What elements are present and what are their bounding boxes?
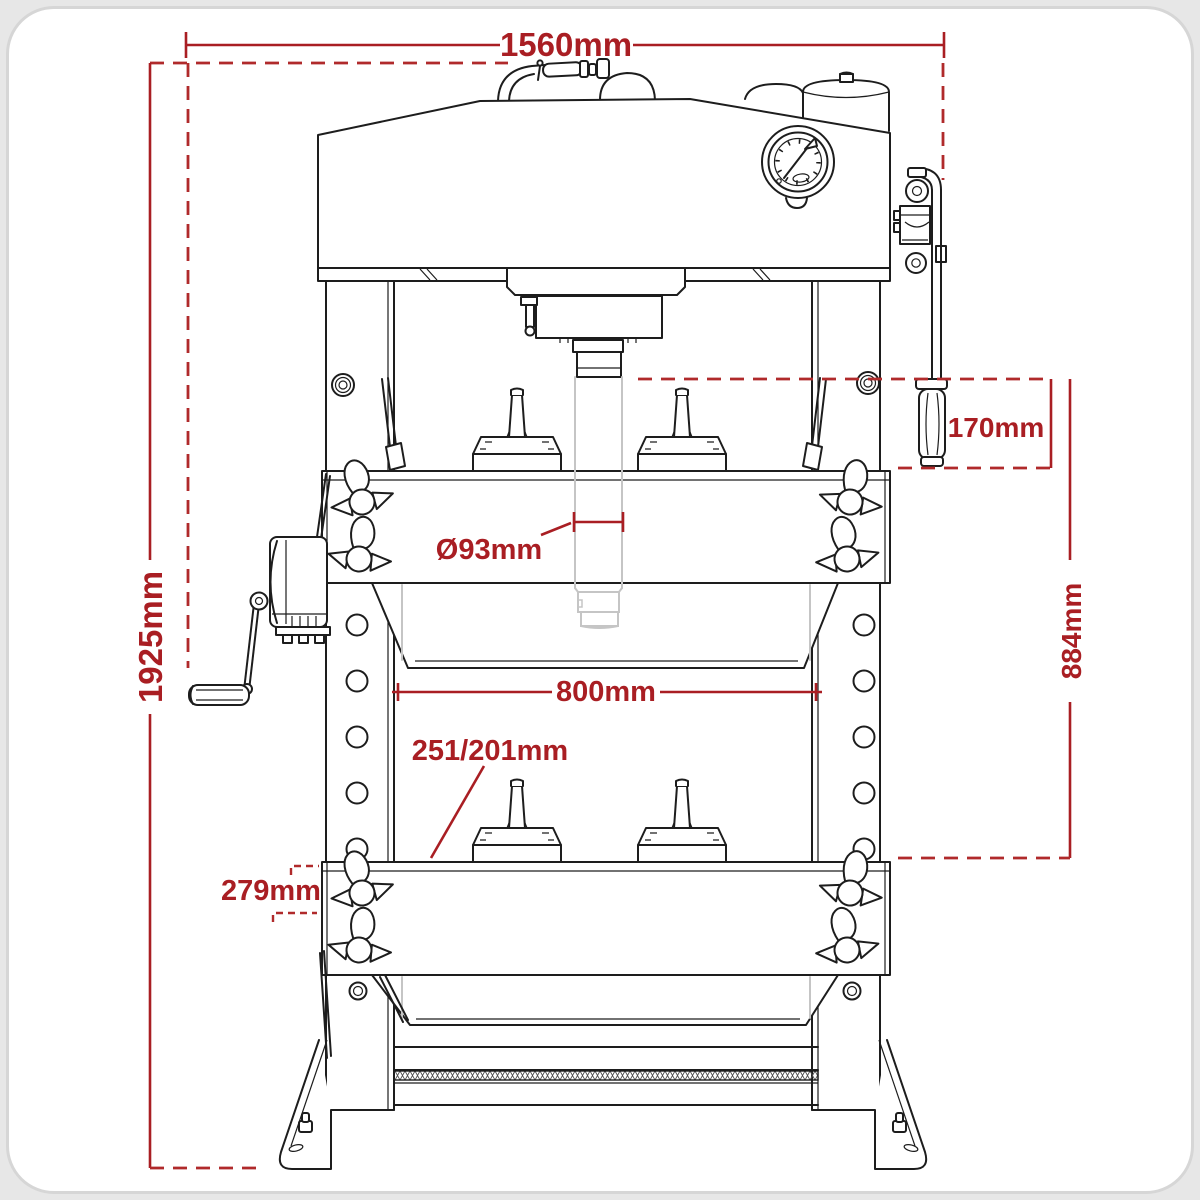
ram-diameter-label: Ø93mm xyxy=(436,534,542,566)
winch xyxy=(189,474,330,705)
press-diagram: 1560mm 1925mm 170mm 884mm Ø93mm xyxy=(0,0,1200,1200)
left-foot xyxy=(280,1040,331,1169)
pump-handle-grip xyxy=(916,379,947,466)
dim-overall-height: 1925mm xyxy=(132,63,264,1168)
dim-internal-width: 800mm xyxy=(392,676,822,708)
upper-bed xyxy=(322,443,890,668)
internal-width-label: 800mm xyxy=(556,676,656,708)
block-spacing-label: 251/201mm xyxy=(412,735,568,767)
bed-height-label: 884mm xyxy=(1056,583,1087,680)
hydraulic-cylinder xyxy=(507,268,685,377)
bed-cables xyxy=(382,378,826,447)
press-drawing xyxy=(189,59,947,1169)
base-depth-label: 279mm xyxy=(221,875,321,907)
dim-base-depth: 279mm xyxy=(221,866,321,922)
winch-crank-handle xyxy=(189,593,268,706)
lower-bed xyxy=(320,845,890,1058)
overall-height-label: 1925mm xyxy=(132,571,169,703)
right-foot xyxy=(875,1040,926,1169)
overall-width-label: 1560mm xyxy=(500,26,632,63)
handle-length-label: 170mm xyxy=(948,412,1045,443)
pump-valve-unit xyxy=(894,168,946,383)
